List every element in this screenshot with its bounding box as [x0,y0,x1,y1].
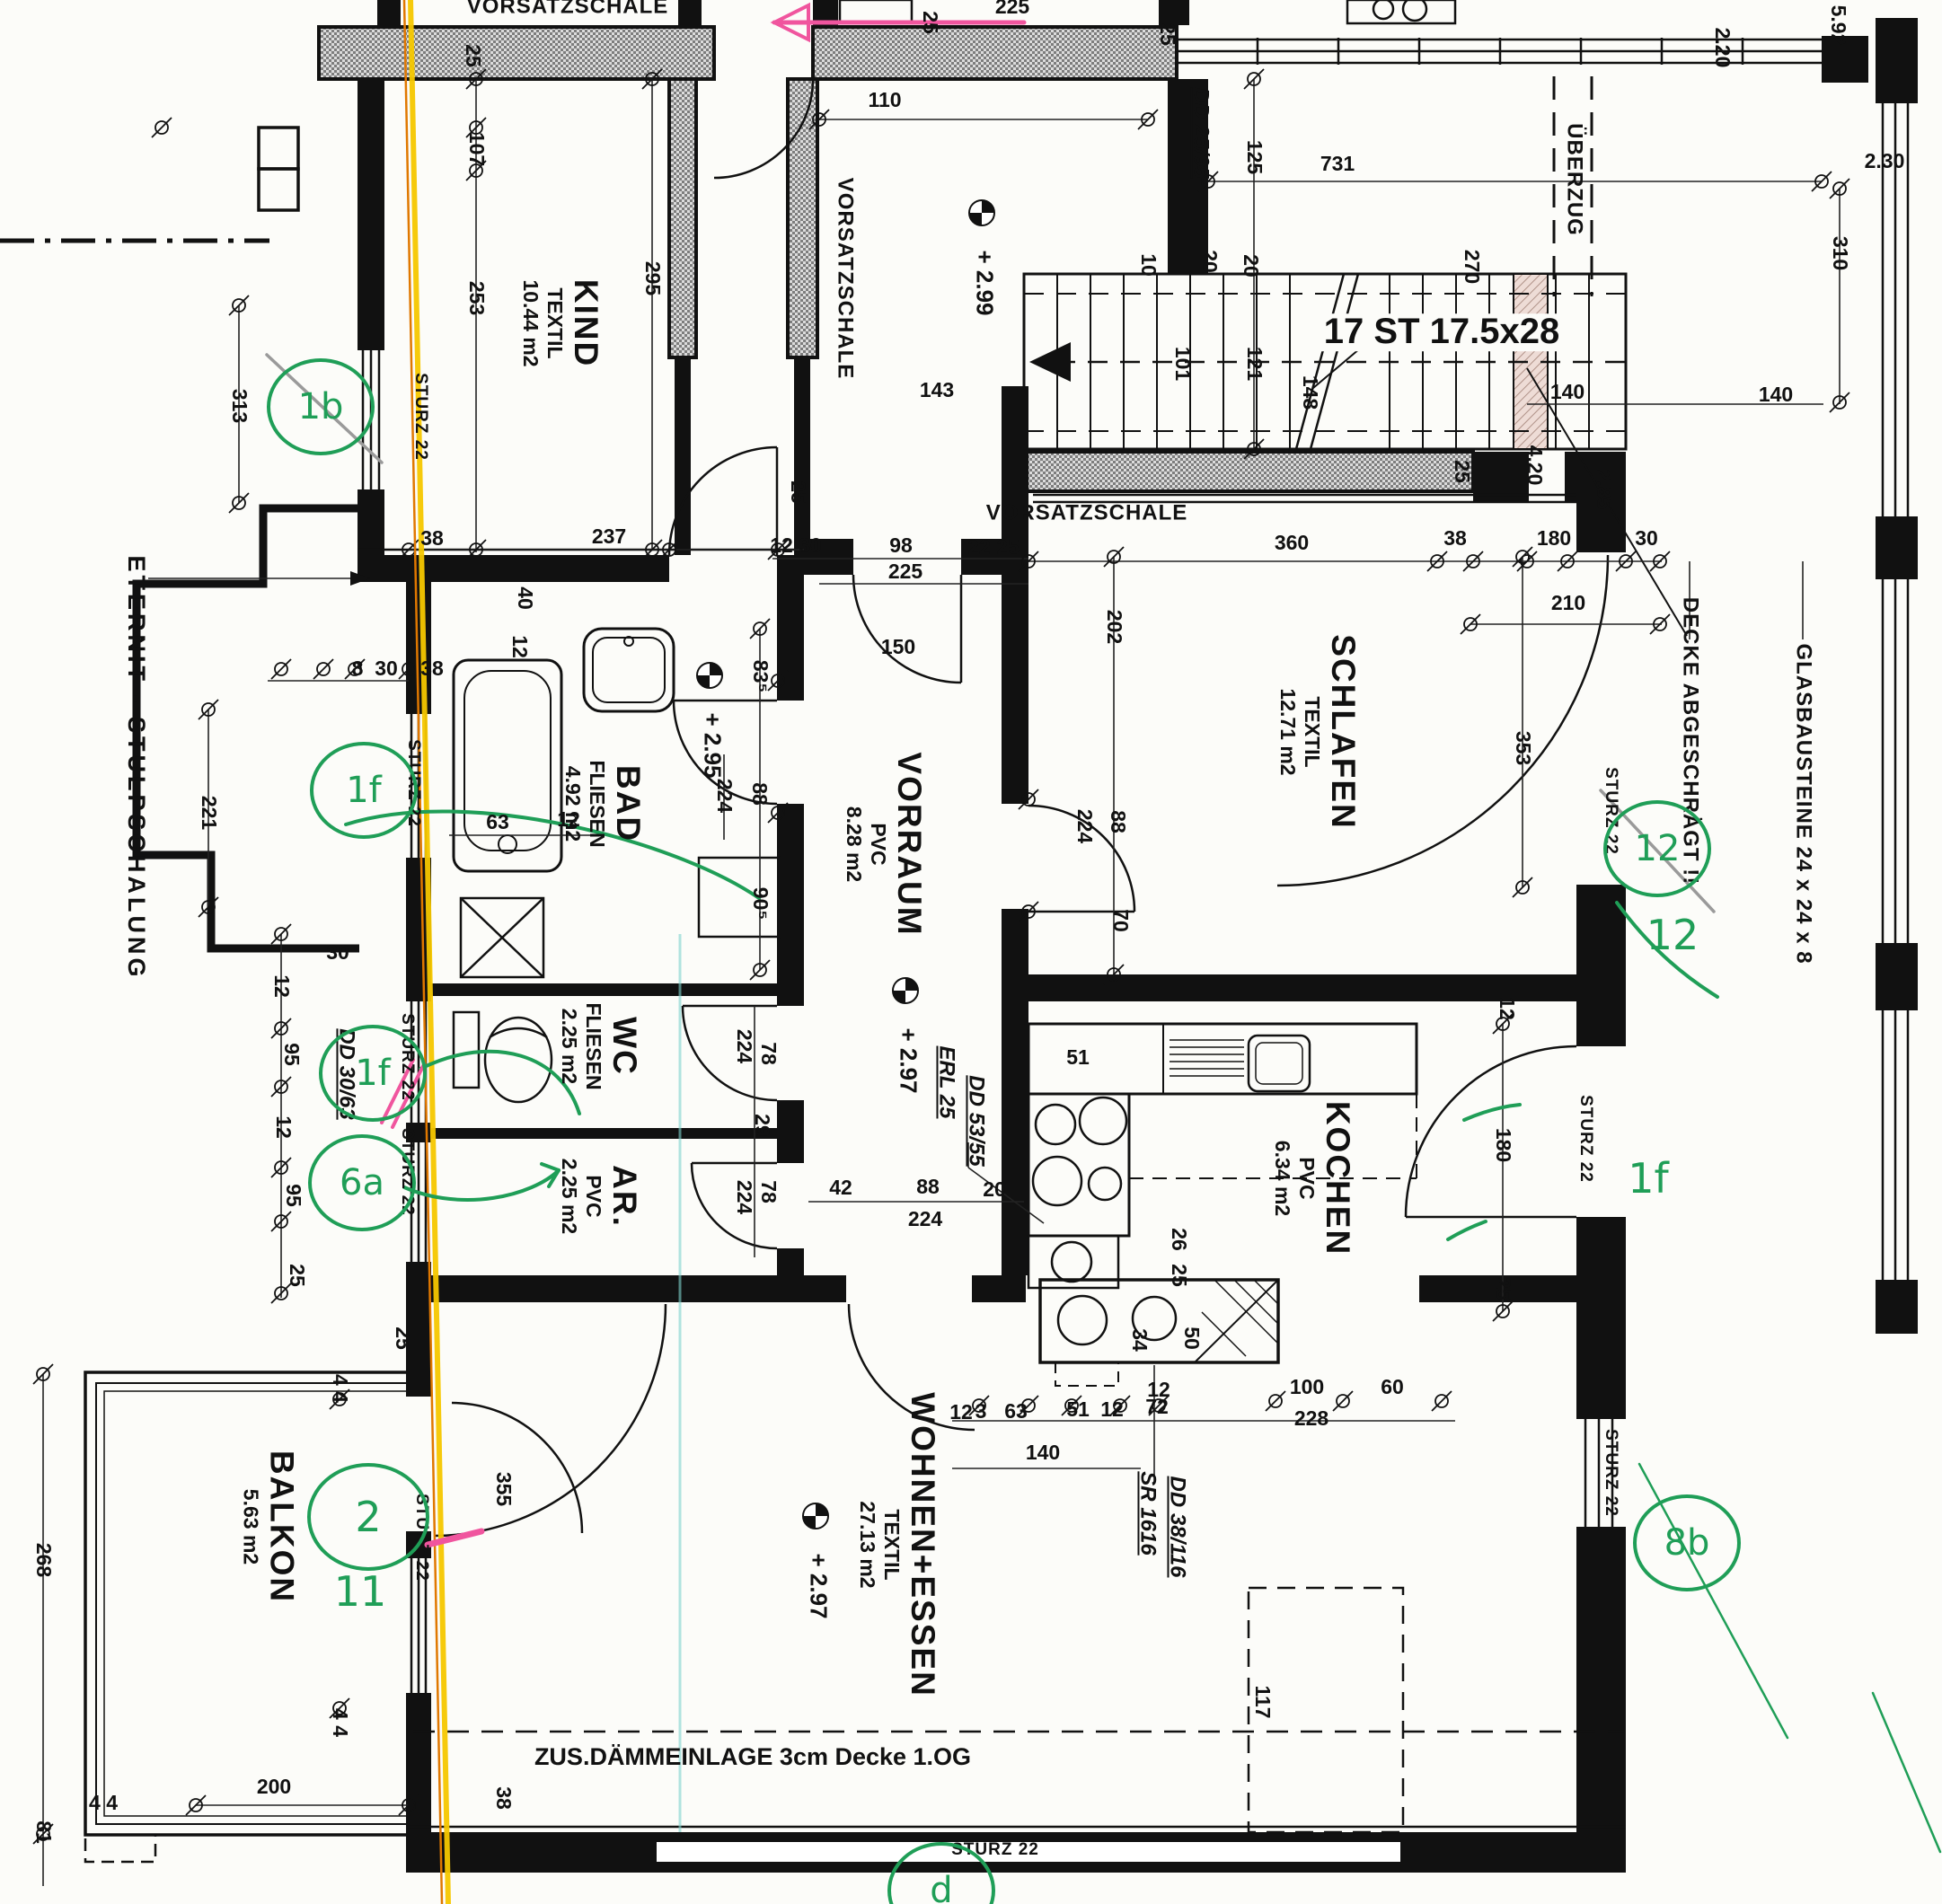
dim-label: 25 [1156,22,1178,46]
dim-label: 210 [1551,593,1585,614]
room-label-kochen: KOCHENPVC6.34 m2 [1270,1101,1356,1256]
room-area: 12.71 m2 [1276,634,1300,829]
room-label-kind: KINDTEXTIL10.44 m2 [518,279,605,367]
dim-label: 63 [1004,1401,1028,1423]
room-material: PVC [1294,1101,1319,1256]
level-marker-icon [968,199,995,226]
note-label: VORSATZSCHALE [834,178,856,380]
handwriting-text: 2 [355,1493,381,1541]
handwriting-circle: 8b [1633,1494,1741,1591]
dim-label: 4.20 [1523,445,1545,486]
dim-label: 12 [272,1115,294,1139]
dim-label: 2.20 [1711,28,1733,68]
handwriting-circle: 12 [1603,800,1711,897]
room-label-schlafen: SCHLAFENTEXTIL12.71 m2 [1276,634,1362,829]
note-label: GLASBAUSTEINE 24 x 24 x 8 [1792,643,1814,964]
dim-label: 20 [983,1179,1006,1201]
dim-label: 30 [799,535,822,557]
note-label: VORSATZSCHALE [467,0,669,18]
room-label-wohnen-essen: WOHNEN+ESSENTEXTIL27.13 m2 [855,1392,941,1697]
dim-label: 12 [1496,997,1517,1020]
handwriting-text: 6a [340,1162,384,1203]
dim-label: 3 [975,1401,987,1423]
dim-label: 25 [462,44,483,67]
dim-label: 295 [641,261,663,295]
dim-label: 270 [1461,250,1482,284]
dim-label: 225 [995,0,1029,18]
toilet-icon [454,1012,552,1102]
dim-label: 78 [757,1180,779,1203]
room-name: WOHNEN+ESSEN [904,1392,941,1697]
dim-label: 12 [1100,1399,1124,1421]
dim-label: 237 [592,526,626,548]
room-name: AR. [605,1159,643,1234]
room-material: TEXTIL [879,1392,904,1697]
dim-label: 25 [286,1264,307,1287]
dim-label: 25 [392,1327,413,1350]
facade-step-outline [137,508,359,948]
stove-icon [1028,1094,1129,1236]
room-area: 2.25 m2 [557,1002,581,1089]
room-area: 8.28 m2 [842,752,866,936]
dim-label: 25 [996,537,1020,559]
dim-label: 107 [465,132,487,166]
note-label: ÜBERZUG [1563,123,1585,236]
room-name: WC [605,1002,643,1089]
dim-label: 224 [713,779,735,813]
dim-label: 30 [1635,528,1658,550]
dim-label: 268 [32,1543,54,1577]
bathtub-icon [454,660,561,871]
floor-plan-canvas: 2510725329511022525251257312027010201011… [0,0,1942,1904]
dim-label: 121 [1243,347,1265,381]
dim-label: 12 [270,974,292,998]
dim-label: 360 [1275,533,1309,554]
dim-label: 2.85 [1593,470,1614,510]
room-area: 27.13 m2 [855,1392,879,1697]
level-marker-icon [802,1503,829,1529]
dim-label: 38 [492,1786,514,1810]
dim-label: 22 [967,537,991,559]
dim-label: 253 [465,281,487,315]
note-label: SR 1616 [1136,1471,1159,1555]
note-label: ETERNIT - STULPSCHALUNG [124,556,149,981]
handwriting-text: 12 [1635,828,1681,869]
level-label: + 2.99 [972,250,996,315]
room-area: 10.44 m2 [518,279,543,367]
room-area: 4.92 m2 [561,760,585,847]
note-label: 17 ST 17.5x28 [1315,313,1568,351]
dim-label: 10 [1137,253,1159,277]
dim-label: 313 [228,389,250,423]
room-material: FLIESEN [585,760,609,847]
level-label: + 2.97 [806,1553,830,1618]
room-name: BALKON [263,1450,301,1603]
dim-label: 20 [1198,250,1220,273]
dim-label: 4 4 [89,1793,118,1814]
dim-label: 143 [920,380,954,401]
dim-label: 25 [1168,1264,1189,1287]
dim-label: 180 [1492,1128,1514,1162]
dim-label: 117 [1251,1685,1273,1718]
dim-label: 225 [888,561,922,583]
pencil-strikes [267,355,1714,912]
dim-label: 224 [733,1180,755,1214]
dim-label: 8 [352,658,364,680]
dim-label: 148 [1299,375,1320,410]
handwriting-circle: 1f [319,1025,427,1122]
dim-label: 12 [1147,1380,1170,1401]
dim-label: 5.92 [1827,5,1849,46]
dim-label: 30 [326,942,349,964]
handwriting-circle: 6a [308,1134,416,1231]
dim-label: 51 [1066,1399,1090,1421]
dim-label: 101 [1171,347,1193,381]
handwriting-text: 1f [355,1053,391,1094]
note-label: DD 38/116 [1166,1476,1188,1578]
dim-label: 4 4 [329,1708,350,1737]
note-label: STURZ 22 [1602,1429,1620,1517]
room-label-wc: WCFLIESEN2.25 m2 [557,1002,643,1089]
dim-label: 95 [280,1043,302,1066]
room-material: PVC [866,752,890,936]
handwriting-text: 1f [1628,1158,1668,1201]
dim-label: 81 [32,1820,54,1844]
handwriting-circle: 1f [310,742,418,839]
dim-label: 25 [787,480,808,504]
dim-label: 353 [1512,731,1533,765]
dim-label: 140 [1026,1442,1060,1464]
dim-label: 90⁵ [749,887,771,920]
level-label: + 2.95 [700,712,724,778]
room-label-balkon: BALKON5.63 m2 [239,1450,301,1603]
note-label: DD 25/95 [1189,87,1212,178]
dim-label: 100 [1290,1377,1324,1398]
dim-label: 221 [198,796,219,830]
room-material: TEXTIL [1300,634,1324,829]
dim-label: 224 [908,1209,942,1230]
room-label-bad: BADFLIESEN4.92 m2 [561,760,647,847]
room-area: 2.25 m2 [557,1159,581,1234]
dim-label: 60 [1381,1377,1404,1398]
note-label: VORSATZSCHALE [986,503,1188,525]
room-area: 5.63 m2 [239,1450,263,1603]
dim-label: 51 [1066,1047,1090,1069]
dim-label: 110 [868,90,901,111]
dim-label: 140 [1759,384,1793,406]
dim-label: 200 [257,1776,291,1798]
dim-label: 228 [1294,1408,1329,1430]
handwriting-text: 1b [298,386,344,428]
dim-label: 78 [757,1042,779,1065]
dim-label: 150 [881,637,915,658]
dim-label: 25 [919,11,940,34]
dim-label: 26 [1168,1228,1189,1251]
level-label: + 2.97 [896,1027,920,1093]
dim-label: 40 [514,586,535,610]
handwriting-text: 1f [346,770,382,811]
handwriting-circle: 2 [307,1463,429,1571]
washing-machine-icon [461,898,543,977]
kitchen-block-living [1040,1280,1278,1362]
dim-label: 125 [1243,140,1265,174]
dim-label: 38 [1443,528,1467,550]
dim-label: 310 [1829,236,1850,270]
dim-label: 2.30 [1865,151,1905,172]
dim-label: 42 [829,1177,852,1199]
dim-label: 34 [1128,1328,1150,1352]
room-material: FLIESEN [581,1002,605,1089]
dim-label: 83⁵ [749,660,771,692]
dim-label: 224 [733,1029,755,1063]
handwriting-circle: 1b [267,358,375,455]
dim-label: 25 [1451,460,1472,483]
dim-label: 12 [770,535,793,557]
dim-label: 30 [375,658,398,680]
dim-label: 38 [420,528,444,550]
balcony [85,1372,406,1862]
room-material: TEXTIL [543,279,567,367]
dim-label: 88 [1107,810,1128,833]
room-name: KOCHEN [1319,1101,1356,1256]
room-name: BAD [609,760,647,847]
note-label: ERL 25 [935,1046,958,1119]
bathroom-sink-icon [584,629,674,711]
level-marker-icon [696,662,723,689]
handwriting-text: 8b [1664,1522,1710,1564]
dim-label: 12 [508,635,530,658]
dim-label: 4 4 [329,1374,350,1403]
dim-label: 12 [949,1402,973,1424]
dim-label: 63 [486,812,509,833]
room-area: 6.34 m2 [1270,1101,1294,1256]
handwriting-text: d [930,1870,952,1904]
room-label-vorraum: VORRAUMPVC8.28 m2 [842,752,928,936]
dim-label: 29 [751,1114,772,1137]
room-material: PVC [581,1159,605,1234]
room-name: KIND [567,279,605,367]
handwriting-text: 12 [1646,914,1699,957]
dim-label: 25 [1492,1277,1514,1300]
dim-label: 140 [1550,382,1584,403]
note-label: STURZ 22 [411,373,429,461]
dim-label: 224 [1073,809,1095,843]
room-name: SCHLAFEN [1324,634,1362,829]
dim-label: 70 [1109,909,1131,932]
dim-label: 20 [1240,254,1261,278]
dim-label: 202 [1103,610,1125,644]
note-label: DD 53/55 [965,1075,987,1166]
room-label-ar-: AR.PVC2.25 m2 [557,1159,643,1234]
dim-label: 38 [420,658,444,680]
dim-label: 88 [916,1177,940,1198]
dim-label: 88 [748,782,770,806]
dim-label: 95 [282,1184,304,1207]
note-label: ZUS.DÄMMEINLAGE 3cm Decke 1.OG [534,1744,971,1769]
dim-label: 50 [1180,1327,1202,1350]
handwriting-text: 11 [334,1571,387,1614]
dim-label: 98 [889,535,913,557]
dim-label: 180 [1537,528,1571,550]
level-marker-icon [892,977,919,1004]
room-name: VORRAUM [890,752,928,936]
dim-label: 355 [492,1472,514,1506]
dim-label: 731 [1320,154,1355,175]
note-label: STURZ 22 [1576,1095,1594,1183]
